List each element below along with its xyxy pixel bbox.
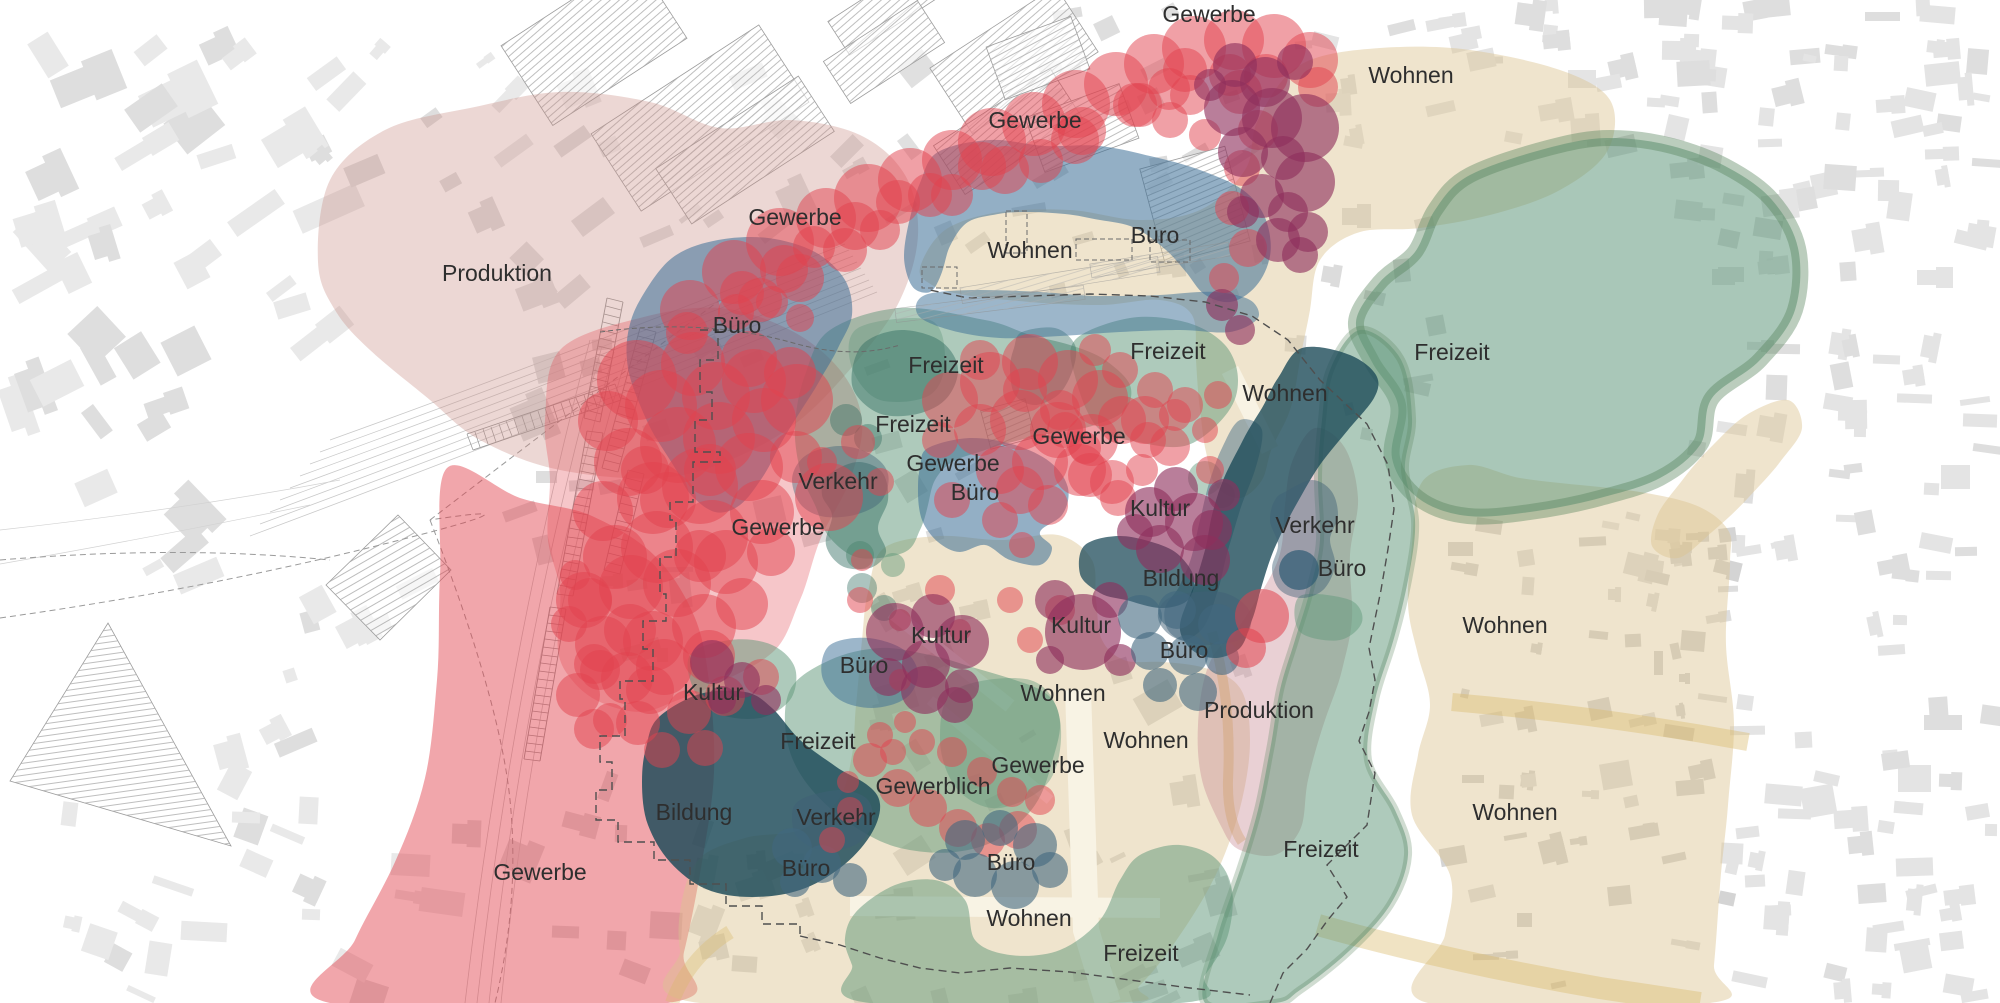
svg-text:Kultur: Kultur: [683, 679, 743, 705]
svg-text:Büro: Büro: [1318, 555, 1367, 581]
svg-text:Büro: Büro: [1131, 222, 1180, 248]
svg-text:Wohnen: Wohnen: [1472, 799, 1557, 825]
svg-text:Büro: Büro: [782, 855, 831, 881]
svg-text:Freizeit: Freizeit: [780, 728, 856, 754]
svg-text:Verkehr: Verkehr: [798, 468, 878, 494]
svg-text:Gewerbe: Gewerbe: [1032, 423, 1125, 449]
svg-text:Wohnen: Wohnen: [1242, 380, 1327, 406]
svg-text:Freizeit: Freizeit: [1130, 338, 1206, 364]
svg-text:Büro: Büro: [713, 312, 762, 338]
svg-text:Freizeit: Freizeit: [1414, 339, 1490, 365]
svg-text:Gewerbe: Gewerbe: [988, 107, 1081, 133]
svg-text:Verkehr: Verkehr: [796, 804, 876, 830]
svg-text:Kultur: Kultur: [1051, 612, 1111, 638]
svg-text:Bildung: Bildung: [656, 799, 733, 825]
svg-text:Gewerbe: Gewerbe: [748, 204, 841, 230]
svg-text:Freizeit: Freizeit: [1283, 836, 1359, 862]
svg-text:Büro: Büro: [840, 652, 889, 678]
svg-text:Wohnen: Wohnen: [986, 905, 1071, 931]
svg-text:Freizeit: Freizeit: [875, 411, 951, 437]
svg-text:Wohnen: Wohnen: [1020, 680, 1105, 706]
svg-text:Produktion: Produktion: [442, 260, 552, 286]
svg-text:Kultur: Kultur: [911, 622, 971, 648]
svg-text:Gewerbe: Gewerbe: [731, 514, 824, 540]
svg-text:Wohnen: Wohnen: [1103, 727, 1188, 753]
svg-text:Gewerbe: Gewerbe: [991, 752, 1084, 778]
svg-text:Gewerblich: Gewerblich: [875, 773, 990, 799]
svg-text:Wohnen: Wohnen: [987, 237, 1072, 263]
svg-text:Produktion: Produktion: [1204, 697, 1314, 723]
svg-text:Kultur: Kultur: [1130, 495, 1190, 521]
svg-text:Wohnen: Wohnen: [1462, 612, 1547, 638]
svg-text:Verkehr: Verkehr: [1275, 512, 1355, 538]
svg-text:Büro: Büro: [1160, 637, 1209, 663]
svg-text:Freizeit: Freizeit: [908, 352, 984, 378]
svg-text:Gewerbe: Gewerbe: [1162, 1, 1255, 27]
svg-text:Freizeit: Freizeit: [1103, 940, 1179, 966]
svg-text:Bildung: Bildung: [1143, 565, 1220, 591]
svg-text:Wohnen: Wohnen: [1368, 62, 1453, 88]
svg-text:Gewerbe: Gewerbe: [906, 450, 999, 476]
svg-text:Gewerbe: Gewerbe: [493, 859, 586, 885]
svg-text:Büro: Büro: [951, 479, 1000, 505]
svg-text:Büro: Büro: [987, 849, 1036, 875]
